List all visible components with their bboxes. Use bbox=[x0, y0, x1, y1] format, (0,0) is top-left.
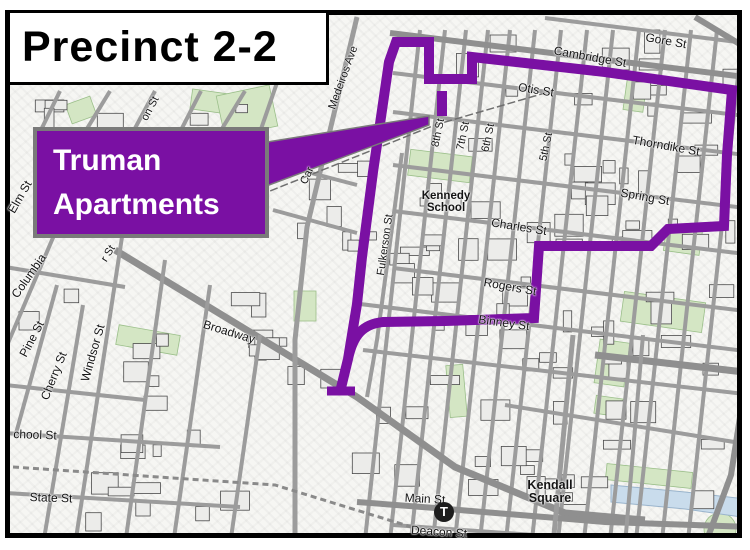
map-svg bbox=[10, 15, 737, 533]
kennedy-school-label: Kennedy School bbox=[422, 190, 471, 214]
map-canvas: Gore StCambridge StOtis StThorndike StSp… bbox=[5, 10, 742, 538]
callout-line2: Apartments bbox=[53, 183, 265, 227]
school-st-label: chool St bbox=[13, 428, 57, 442]
kendall-square-label: Kendall Square bbox=[527, 479, 572, 505]
deacon-st-label: Deacon St bbox=[411, 524, 468, 540]
page-title: Precinct 2-2 bbox=[10, 23, 278, 72]
truman-apartments-callout: Truman Apartments bbox=[33, 127, 269, 238]
precinct-map-page: Gore StCambridge StOtis StThorndike StSp… bbox=[0, 0, 750, 550]
t-station-icon: T bbox=[434, 502, 454, 522]
state-st-label: State St bbox=[29, 491, 72, 505]
callout-line1: Truman bbox=[53, 139, 265, 183]
title-box: Precinct 2-2 bbox=[7, 10, 329, 85]
